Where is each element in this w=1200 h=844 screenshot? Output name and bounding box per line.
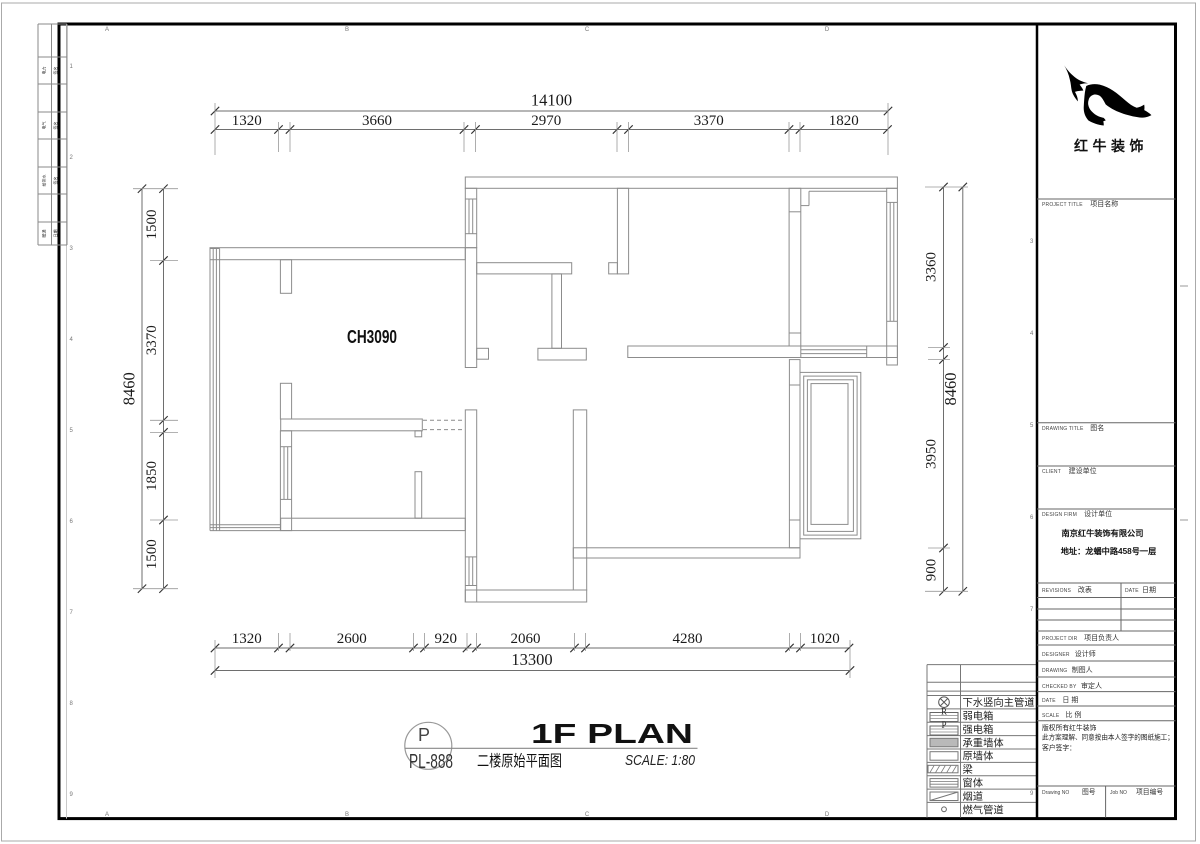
svg-text:CH3090: CH3090 [347, 327, 397, 347]
svg-text:暖通: 暖通 [41, 230, 47, 238]
svg-text:P: P [418, 725, 430, 745]
svg-text:审定人: 审定人 [1081, 681, 1102, 690]
svg-text:DRAWING: DRAWING [1042, 668, 1067, 674]
svg-text:REVISIONS: REVISIONS [1042, 588, 1071, 594]
svg-text:DESIGN FIRM: DESIGN FIRM [1042, 512, 1077, 518]
svg-text:Job NO: Job NO [1110, 790, 1127, 796]
svg-text:南京红牛装饰有限公司: 南京红牛装饰有限公司 [1062, 528, 1144, 538]
svg-text:此方案理解、同意按由本人签字的图纸施工；: 此方案理解、同意按由本人签字的图纸施工； [1042, 733, 1174, 742]
svg-text:4280: 4280 [673, 631, 703, 647]
svg-text:地址：龙蟠中路458号一层: 地址：龙蟠中路458号一层 [1061, 546, 1157, 556]
svg-text:下水竖向主管道: 下水竖向主管道 [963, 696, 1035, 709]
svg-text:项目编号: 项目编号 [1136, 787, 1163, 796]
svg-text:1020: 1020 [810, 631, 840, 647]
svg-text:电气: 电气 [41, 122, 47, 130]
svg-text:C: C [585, 812, 590, 818]
svg-text:B: B [345, 812, 349, 818]
svg-text:900: 900 [924, 559, 940, 582]
svg-text:2600: 2600 [337, 631, 367, 647]
svg-text:CHECKED BY: CHECKED BY [1042, 684, 1077, 690]
svg-text:原墙体: 原墙体 [963, 750, 995, 763]
svg-text:弱电箱: 弱电箱 [963, 710, 994, 723]
svg-text:DATE: DATE [1125, 588, 1139, 594]
svg-text:D: D [825, 812, 830, 818]
svg-text:日 期: 日 期 [1062, 696, 1078, 704]
svg-text:图号: 图号 [1082, 788, 1096, 796]
svg-text:14100: 14100 [531, 91, 572, 110]
svg-text:客户签字：: 客户签字： [1042, 743, 1076, 752]
svg-text:承重墙体: 承重墙体 [963, 736, 1005, 749]
svg-text:签名: 签名 [52, 122, 58, 130]
svg-text:电力: 电力 [41, 67, 47, 75]
svg-text:比 例: 比 例 [1066, 710, 1082, 719]
svg-text:项目负责人: 项目负责人 [1084, 633, 1119, 642]
svg-text:DRAWING TITLE: DRAWING TITLE [1042, 426, 1084, 432]
svg-text:改表: 改表 [1078, 585, 1092, 594]
svg-text:日期: 日期 [1142, 586, 1156, 594]
svg-text:1320: 1320 [232, 631, 262, 647]
svg-text:签名: 签名 [52, 177, 58, 185]
svg-text:A: A [105, 812, 109, 818]
svg-text:建设单位: 建设单位 [1069, 466, 1097, 475]
svg-text:3950: 3950 [924, 439, 940, 469]
svg-text:1500: 1500 [144, 539, 160, 569]
svg-text:1F PLAN: 1F PLAN [531, 718, 693, 749]
svg-text:Drawing NO: Drawing NO [1042, 790, 1069, 796]
svg-text:PL-888: PL-888 [409, 751, 453, 773]
svg-text:P: P [941, 720, 946, 730]
svg-text:2970: 2970 [531, 113, 561, 129]
svg-text:SCALE: 1:80: SCALE: 1:80 [625, 752, 696, 769]
svg-text:给排水: 给排水 [41, 175, 47, 187]
svg-text:设计师: 设计师 [1075, 649, 1096, 658]
svg-text:日期: 日期 [52, 230, 58, 238]
svg-text:制图人: 制图人 [1072, 665, 1093, 674]
svg-text:3660: 3660 [362, 113, 392, 129]
svg-text:1850: 1850 [144, 461, 160, 491]
svg-text:燃气管道: 燃气管道 [963, 803, 1004, 816]
svg-text:CLIENT: CLIENT [1042, 469, 1061, 475]
svg-text:版权所有红牛装饰: 版权所有红牛装饰 [1042, 723, 1097, 732]
svg-text:8460: 8460 [941, 373, 960, 406]
svg-text:图名: 图名 [1090, 423, 1104, 432]
svg-text:1820: 1820 [829, 113, 859, 129]
svg-text:梁: 梁 [963, 763, 973, 776]
svg-text:D: D [825, 27, 830, 33]
svg-text:C: C [585, 27, 590, 33]
svg-text:8460: 8460 [120, 372, 139, 405]
svg-text:设计单位: 设计单位 [1084, 509, 1112, 518]
svg-text:PROJECT TITLE: PROJECT TITLE [1042, 202, 1083, 208]
svg-text:920: 920 [435, 631, 458, 647]
svg-text:B: B [345, 27, 349, 33]
svg-text:1320: 1320 [232, 113, 262, 129]
svg-text:3370: 3370 [144, 325, 160, 355]
svg-text:签名: 签名 [52, 67, 58, 75]
svg-text:R: R [941, 707, 947, 717]
svg-text:SCALE: SCALE [1042, 713, 1060, 719]
svg-text:二楼原始平面图: 二楼原始平面图 [477, 752, 562, 770]
svg-text:1500: 1500 [144, 210, 160, 240]
svg-text:PROJECT DIR: PROJECT DIR [1042, 636, 1078, 642]
svg-text:烟道: 烟道 [963, 790, 984, 803]
svg-text:红牛装饰: 红牛装饰 [1074, 138, 1148, 155]
svg-text:DATE: DATE [1042, 698, 1056, 704]
svg-text:13300: 13300 [511, 650, 552, 669]
svg-text:A: A [105, 27, 109, 33]
svg-text:2060: 2060 [511, 631, 541, 647]
svg-text:项目名称: 项目名称 [1090, 199, 1118, 208]
svg-text:3360: 3360 [924, 252, 940, 282]
svg-text:窗体: 窗体 [963, 777, 984, 790]
svg-text:3370: 3370 [694, 113, 724, 129]
svg-text:DESIGNER: DESIGNER [1042, 652, 1070, 658]
svg-text:强电箱: 强电箱 [963, 723, 994, 736]
